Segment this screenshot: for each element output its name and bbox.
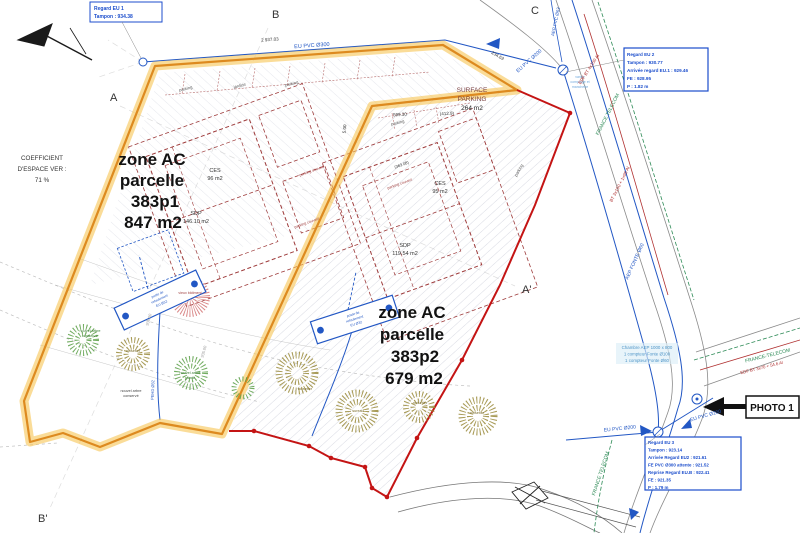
tree-label-conserve-2a: nouvel arbre: [120, 389, 141, 393]
parcel2-parcelle: parcelle: [380, 325, 444, 344]
note-box-eu1: Regard EU 1 Tampon : 934.38: [90, 2, 162, 58]
dim-234: 234.63: [491, 50, 506, 61]
eu2-line1: Regard EU 2: [627, 52, 655, 57]
section-label-a-prime: A': [522, 284, 531, 296]
eu2-line3: Arrivée regard EU.1 : 929.46: [627, 68, 688, 73]
dim-2937: 2 937.03: [261, 36, 279, 42]
pump-box-parcel1: poste de refoulement EU Ø32: [114, 270, 206, 330]
label-france-telecom-top: FRANCE TELECOM: [595, 93, 621, 137]
eu3-line3: Arrivée Regard EU2 : 921.61: [648, 455, 707, 460]
vanne-line3: manchette: [572, 85, 588, 89]
eu3-line7: P : 1.79 m: [648, 485, 669, 490]
eu3-line4: FE PVC Ø300 attente : 921.52: [648, 463, 709, 468]
photo-label: PHOTO 1: [750, 403, 794, 414]
eu2-line4: FE : 928.95: [627, 76, 651, 81]
parcel2-ces: CES: [434, 181, 446, 187]
tree-label-conserve-1b: conservé: [82, 334, 97, 338]
tree-label-plante-b: planté: [185, 376, 195, 380]
tree-label-noisetier-3: noisetier: [413, 401, 428, 405]
coefficient-line1: COEFFICIENT: [21, 155, 63, 162]
dim-599: 599.30: [393, 112, 408, 118]
tree-label-conserve-2b: conservé: [123, 394, 138, 398]
parcel2-zone: zone AC: [378, 303, 445, 322]
label-aep-fonte-60: AEP FONTE Ø60: [624, 242, 645, 280]
road-bottom: [390, 482, 622, 533]
label-eu-pvc-200-top: EU PVC Ø200: [515, 48, 543, 74]
surface-parking-line2: PARKING: [458, 96, 487, 103]
tree-label-sureau: sureau: [352, 409, 364, 413]
chambre-line1: Chambre AEP 1000 x 800: [622, 345, 673, 350]
coefficient-line2: D'ESPACE VER :: [17, 166, 66, 173]
parcel2-sdp: SDP: [399, 243, 411, 249]
section-label-a: A: [110, 92, 118, 104]
parcel1-sdp-val: 146.10 m2: [183, 219, 209, 225]
surface-parking-line1: SURFACE: [457, 87, 488, 94]
tree-label-plante-a: nouvel arbre: [179, 371, 200, 375]
tree-label-conserve-1a: nouvel arbre: [79, 329, 100, 333]
parcel1-parcelle: parcelle: [120, 171, 184, 190]
eu3-line2: Tampon : 923.14: [648, 448, 683, 453]
note-box-chambre: Chambre AEP 1000 x 800 1 compteur Fonte …: [616, 343, 678, 364]
parcel1-ces: CES: [209, 168, 221, 174]
surface-parking-area: 264 m2: [461, 105, 483, 112]
label-ruine: vieux bâtiment: [178, 291, 201, 295]
parcel1-ces-val: 96 m2: [207, 176, 222, 182]
tree-label-noisetier-4: noisetier: [470, 411, 485, 415]
parcel2-numero: 383p2: [391, 347, 439, 366]
section-label-c: C: [531, 5, 539, 17]
eu3-line5: Reprise Regard EU.B : 922.41: [648, 470, 710, 475]
eu1-line1: Regard EU 1: [94, 6, 124, 12]
eu3-line6: FE : 921.35: [648, 478, 671, 483]
dim-412: (412.9): [440, 111, 455, 117]
parcel2-surface: 679 m2: [385, 369, 443, 388]
coefficient-line3: 71 %: [35, 177, 50, 184]
parcel2-sdp-val: 119.54 m2: [392, 251, 418, 257]
parcel2-ces-val: 95 m2: [432, 189, 447, 195]
eu2-line2: Tampon : 930.77: [627, 60, 663, 65]
site-plan-drawing: poste de refoulement EU Ø32 poste de ref…: [0, 0, 800, 533]
parcel1-sdp: SDP: [190, 211, 202, 217]
section-label-b: B: [272, 9, 279, 21]
tree-label-noisetier-2: noisetier: [298, 387, 313, 391]
tree-label-noisetier-1: noisetier: [126, 349, 141, 353]
parcel1-zone: zone AC: [118, 150, 185, 169]
section-label-b-prime: B': [38, 513, 47, 525]
label-aep-pvc-63: AEP PVC Ø63: [550, 6, 561, 36]
parcel1-surface: 847 m2: [124, 213, 182, 232]
north-arrow-icon: [18, 24, 92, 60]
culvert-structure: [512, 482, 640, 527]
eu1-line2: Tampon : 934.38: [94, 14, 133, 20]
chambre-line3: 1 compteur Fonte Ø60: [625, 358, 669, 363]
dim-5: 5.00: [342, 124, 348, 134]
chambre-line2: 1 compteur Fonte Ø100: [624, 352, 671, 357]
contour-label-935: 935.00: [200, 344, 208, 358]
parcel1-numero: 383p1: [131, 192, 179, 211]
eu2-line5: P : 1.82 m: [627, 84, 648, 89]
eu3-line1: Regard EU 3: [648, 440, 675, 445]
note-box-eu3: Regard EU 3 Tampon : 923.14 Arrivée Rega…: [645, 434, 741, 490]
label-eu-pvc-200-photo: EU PVC Ø200: [689, 409, 722, 424]
label-eu-pvc-200-bottom: EU PVC Ø200: [604, 424, 637, 433]
label-pehd: PEHD Ø32: [150, 379, 156, 400]
